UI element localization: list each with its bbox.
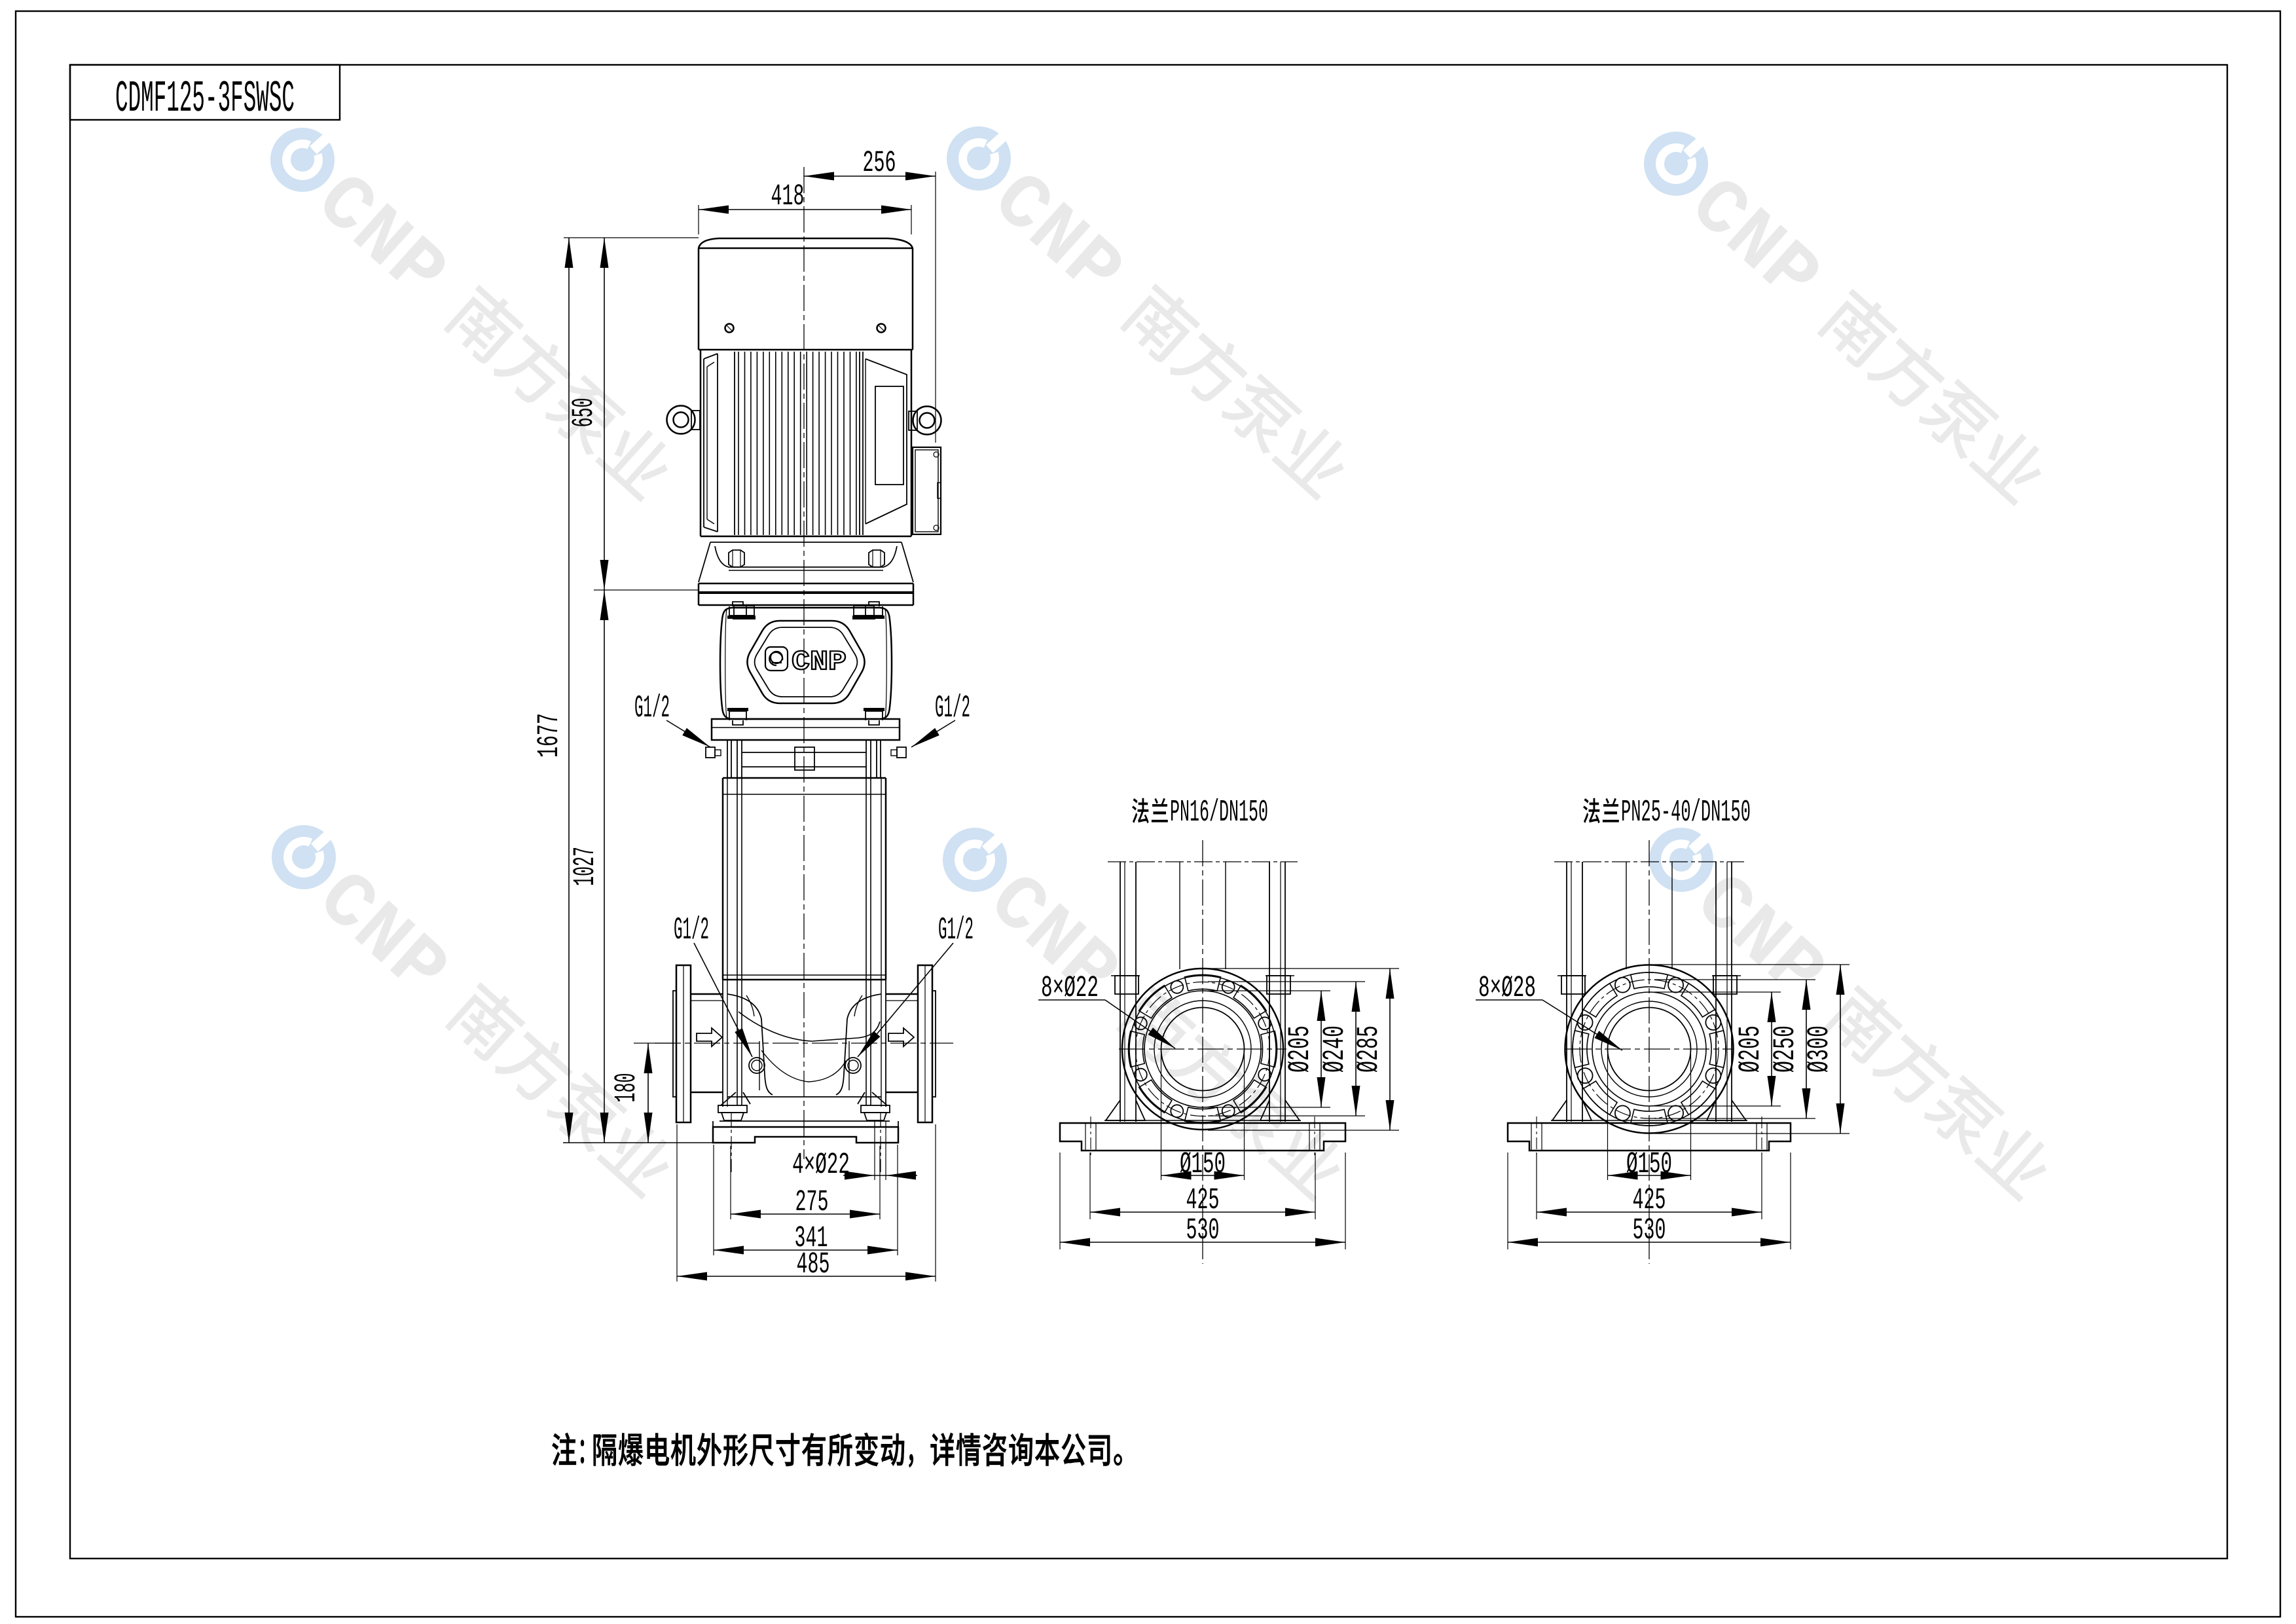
svg-text:425: 425 — [1633, 1183, 1666, 1217]
svg-text:PN25-40/DN150: PN25-40/DN150 — [1621, 796, 1751, 830]
svg-text:CDMF125-3FSWSC: CDMF125-3FSWSC — [115, 74, 295, 124]
svg-text:1677: 1677 — [532, 713, 566, 758]
svg-text:Ø205: Ø205 — [1734, 1025, 1768, 1073]
svg-text:Ø150: Ø150 — [1180, 1147, 1226, 1181]
svg-text:418: 418 — [771, 179, 805, 213]
svg-text:Ø250: Ø250 — [1768, 1025, 1802, 1073]
svg-text:Ø205: Ø205 — [1283, 1025, 1317, 1073]
svg-text:275: 275 — [795, 1185, 829, 1219]
svg-text:530: 530 — [1633, 1213, 1666, 1247]
svg-text:Ø285: Ø285 — [1352, 1025, 1386, 1073]
svg-text:180: 180 — [610, 1073, 644, 1103]
svg-text:530: 530 — [1186, 1213, 1220, 1247]
svg-text:Ø150: Ø150 — [1626, 1147, 1672, 1181]
svg-text:PN16/DN150: PN16/DN150 — [1170, 796, 1268, 830]
svg-text:CNP: CNP — [792, 646, 847, 678]
svg-text:256: 256 — [863, 146, 896, 180]
svg-text:G1/2: G1/2 — [938, 913, 974, 948]
svg-text:425: 425 — [1186, 1183, 1220, 1217]
svg-text:G1/2: G1/2 — [674, 913, 709, 948]
svg-text:Ø240: Ø240 — [1318, 1025, 1352, 1073]
svg-text:Ø300: Ø300 — [1802, 1025, 1836, 1073]
svg-text:485: 485 — [797, 1247, 830, 1282]
svg-text:4×Ø22: 4×Ø22 — [792, 1148, 850, 1182]
svg-text:G1/2: G1/2 — [935, 691, 970, 726]
svg-text:G1/2: G1/2 — [634, 691, 670, 726]
svg-text:1027: 1027 — [568, 847, 602, 886]
svg-text:650: 650 — [567, 398, 601, 428]
